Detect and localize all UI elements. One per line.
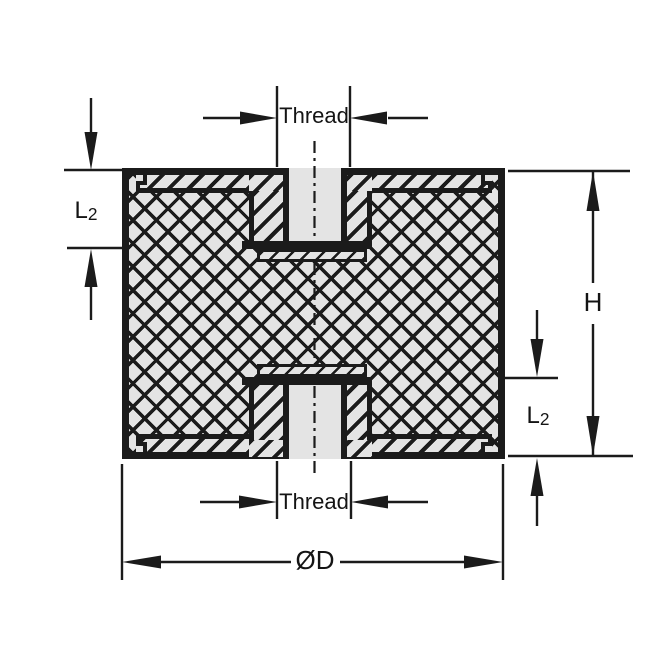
technical-drawing-canvas: Thread L2 H L2 Thread ØD bbox=[0, 0, 670, 670]
top-threaded-hole bbox=[283, 168, 347, 241]
thread-bottom-label: Thread bbox=[249, 490, 379, 514]
top-flange-right-notch bbox=[481, 175, 492, 185]
l2-right-label: L2 bbox=[503, 403, 573, 429]
bottom-insert-flange-left bbox=[136, 434, 249, 452]
l2-left-subscript: 2 bbox=[88, 204, 98, 224]
top-insert-washer bbox=[257, 249, 367, 262]
l2-right-subscript: 2 bbox=[540, 409, 550, 429]
l2-right-base: L bbox=[527, 402, 540, 429]
top-flange-left-notch bbox=[136, 175, 147, 185]
top-insert-end-plate bbox=[242, 241, 372, 249]
bottom-insert-flange-right bbox=[372, 434, 492, 452]
bottom-flange-right-notch bbox=[481, 442, 492, 452]
bottom-insert-end-plate bbox=[242, 377, 372, 385]
l2-left-label: L2 bbox=[51, 198, 121, 224]
h-label: H bbox=[563, 288, 623, 317]
top-insert-flange-left bbox=[136, 175, 249, 193]
bottom-threaded-hole bbox=[283, 385, 347, 459]
od-label: ØD bbox=[270, 546, 360, 575]
top-insert-flange-right bbox=[372, 175, 492, 193]
bottom-insert-washer bbox=[257, 364, 367, 377]
thread-top-label: Thread bbox=[249, 104, 379, 128]
bottom-flange-left-notch bbox=[136, 442, 147, 452]
l2-left-base: L bbox=[75, 197, 88, 224]
